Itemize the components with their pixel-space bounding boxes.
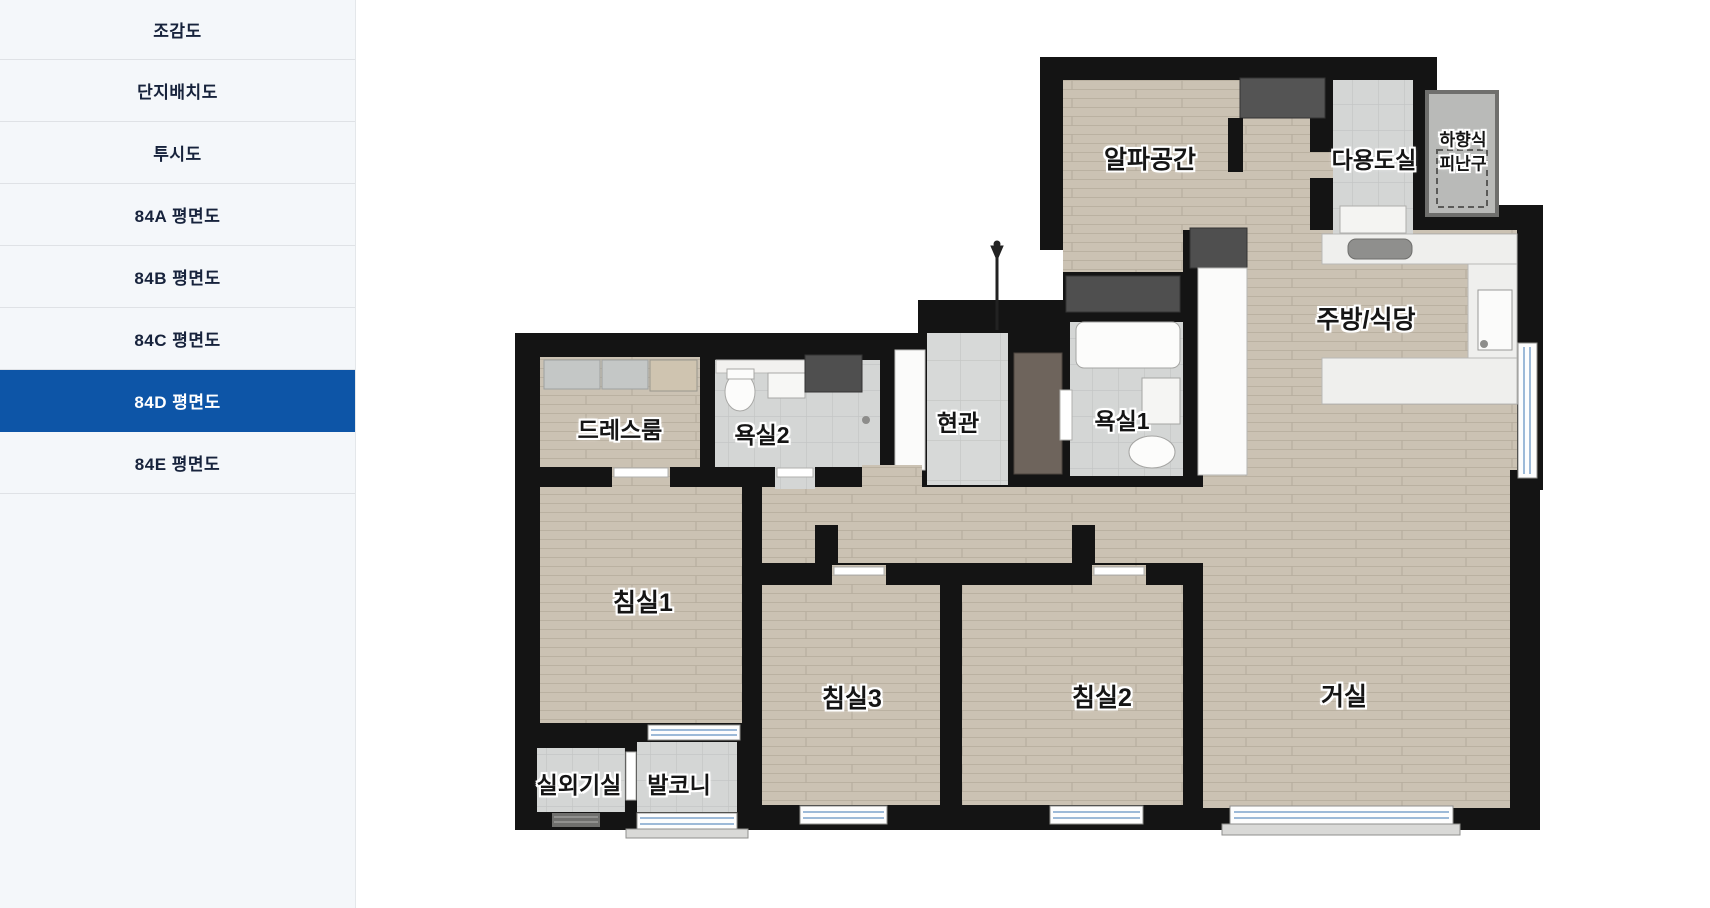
- sidebar-item-84d-selected[interactable]: 84D 평면도: [0, 370, 355, 432]
- room-label-dress-room: 드레스룸: [578, 411, 663, 445]
- room-label-bedroom2: 침실2: [1072, 678, 1132, 714]
- room-label-bathroom2: 욕실2: [734, 416, 789, 450]
- floorplan-viewer: 조감도 단지배치도 투시도 84A 평면도 84B 평면도 84C 평면도 84…: [0, 0, 1710, 908]
- room-label-living-room: 거실: [1321, 677, 1367, 713]
- room-label-utility-room: 다용도실: [1332, 141, 1417, 175]
- sidebar-item-birdseye[interactable]: 조감도: [0, 0, 355, 60]
- plan-type-menu: 조감도 단지배치도 투시도 84A 평면도 84B 평면도 84C 평면도 84…: [0, 0, 355, 494]
- sidebar-item-84b[interactable]: 84B 평면도: [0, 246, 355, 308]
- room-label-entrance: 현관: [937, 404, 979, 438]
- sidebar-item-84a[interactable]: 84A 평면도: [0, 184, 355, 246]
- room-label-alpha-space: 알파공간: [1104, 140, 1196, 176]
- room-label-escape-hatch-1: 하향식: [1440, 126, 1487, 151]
- room-label-outdoor-unit: 실외기실: [537, 766, 622, 800]
- sidebar-item-84c[interactable]: 84C 평면도: [0, 308, 355, 370]
- room-label-escape-hatch-2: 피난구: [1440, 150, 1487, 175]
- room-label-bedroom3: 침실3: [822, 679, 882, 715]
- room-label-bedroom1: 침실1: [613, 583, 673, 619]
- sidebar-item-84e[interactable]: 84E 평면도: [0, 432, 355, 494]
- room-label-bathroom1: 욕실1: [1094, 402, 1149, 436]
- sidebar-item-site-layout[interactable]: 단지배치도: [0, 60, 355, 122]
- room-label-kitchen-dining: 주방/식당: [1317, 300, 1416, 336]
- plan-type-sidebar: 조감도 단지배치도 투시도 84A 평면도 84B 평면도 84C 평면도 84…: [0, 0, 356, 908]
- room-label-balcony: 발코니: [647, 766, 710, 800]
- sidebar-item-perspective[interactable]: 투시도: [0, 122, 355, 184]
